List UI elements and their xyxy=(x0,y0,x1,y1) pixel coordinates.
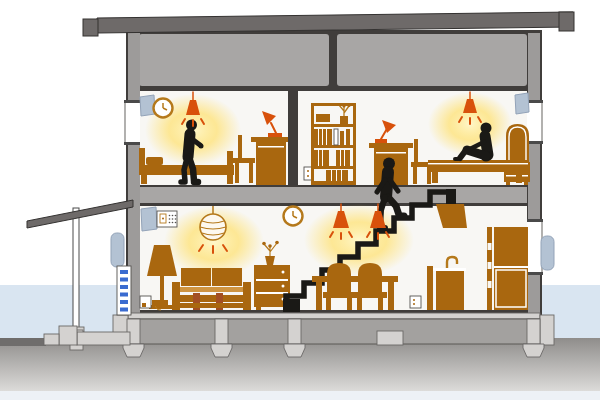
mattress-seam xyxy=(428,163,528,164)
chair-leg xyxy=(249,163,253,183)
bed-leg xyxy=(227,175,233,184)
porch-step xyxy=(44,334,59,345)
outlet-dot xyxy=(413,299,415,301)
sofa-armrest xyxy=(172,282,180,310)
chair-leg xyxy=(378,298,383,310)
walkway xyxy=(0,338,46,346)
pier-footing xyxy=(211,344,232,357)
pier xyxy=(527,319,540,344)
power-outlet xyxy=(410,296,421,308)
sofa-cushion xyxy=(212,268,242,286)
right-wall-window-lower xyxy=(526,221,542,274)
pier-footing xyxy=(123,344,144,357)
exterior-vent-left xyxy=(111,233,124,267)
sink-cabinet xyxy=(436,271,464,310)
tall-cabinet xyxy=(427,266,433,310)
roof-eave-right xyxy=(559,12,574,31)
bed-leg xyxy=(516,172,522,183)
outlet-dot xyxy=(413,303,415,305)
pier xyxy=(215,319,228,344)
second-floor-slab xyxy=(140,187,527,203)
wall-vent-icon xyxy=(515,93,529,114)
chair-back xyxy=(358,263,382,295)
chair-leg xyxy=(326,298,331,310)
pier-footing xyxy=(284,344,305,357)
porch-awning xyxy=(27,200,133,228)
outlet-dot xyxy=(307,170,309,172)
roof-eave-left xyxy=(83,19,98,36)
lamp-pole xyxy=(160,276,164,302)
wall-clock-icon xyxy=(154,99,173,118)
foundation-band xyxy=(128,319,540,344)
exterior-vent-right xyxy=(541,236,554,270)
chair-leg xyxy=(413,167,417,184)
ventilation-dashed-duct xyxy=(117,266,131,315)
stair-landing-edge xyxy=(446,189,456,204)
desk-top xyxy=(369,143,413,148)
bed-platform xyxy=(428,160,528,172)
chair-back xyxy=(327,263,351,295)
desk-top xyxy=(251,137,288,142)
foundation-stub-right xyxy=(540,315,554,345)
pier xyxy=(288,319,301,344)
right-wall-upper xyxy=(528,33,540,103)
chair-back xyxy=(414,139,418,164)
control-panel xyxy=(157,211,177,227)
bed-leg xyxy=(432,172,438,183)
table-leg xyxy=(316,282,322,310)
desk-drawer-line xyxy=(376,152,406,154)
chair-leg xyxy=(357,298,362,310)
left-wall-upper xyxy=(128,33,140,103)
chair-seat xyxy=(233,158,255,163)
stair-bottom-step xyxy=(283,299,300,312)
foundation-notch xyxy=(377,331,403,345)
porch-slab xyxy=(77,332,130,345)
plug-icon xyxy=(152,300,157,306)
table-leg xyxy=(388,282,394,310)
right-wall-lower xyxy=(528,274,540,313)
window-lintel xyxy=(525,219,543,222)
porch-step xyxy=(59,326,77,345)
fridge-body xyxy=(494,227,528,310)
left-wall-lower xyxy=(131,266,140,313)
roof-slab xyxy=(97,12,573,33)
wall-clock-icon xyxy=(284,207,303,226)
bed-pillow xyxy=(146,157,163,165)
bottom-strip xyxy=(0,391,600,400)
bed-leg xyxy=(141,175,147,184)
lantern-globe xyxy=(200,214,226,240)
desk-drawer-line xyxy=(258,146,284,148)
left-wall-window xyxy=(125,102,142,144)
wall-vent-icon xyxy=(141,207,157,231)
attic-left-block xyxy=(139,34,329,86)
table-top xyxy=(312,276,398,282)
house-cross-section xyxy=(0,0,600,400)
chair-seat xyxy=(323,292,356,298)
pier-footing xyxy=(523,344,544,357)
desk xyxy=(251,137,288,185)
book-stack xyxy=(316,114,330,122)
floor-slab-edge xyxy=(128,313,540,319)
chair-seat xyxy=(354,292,387,298)
chair-leg xyxy=(347,298,352,310)
chair-leg xyxy=(235,163,239,183)
illustration-stage xyxy=(0,0,600,400)
attic-right-block xyxy=(337,34,527,86)
books-row xyxy=(326,170,348,181)
outlet-dot xyxy=(307,175,309,177)
sofa-cushion xyxy=(181,268,211,286)
right-wall-mid xyxy=(528,143,540,222)
desk-pedestal xyxy=(256,142,286,185)
porch-post xyxy=(73,208,79,332)
sofa-armrest xyxy=(243,282,251,310)
